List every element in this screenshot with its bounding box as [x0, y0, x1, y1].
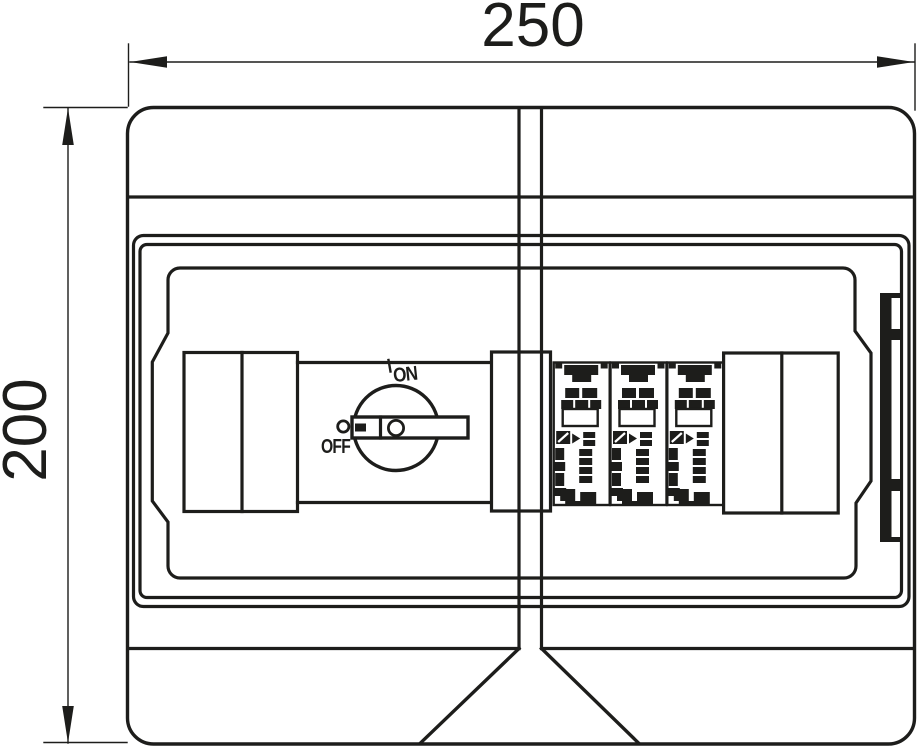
- arrowhead-down: [62, 706, 74, 743]
- enclosure-technical-drawing: ON OFF 250: [0, 0, 921, 750]
- spd-module-3: [667, 363, 724, 506]
- switch-handle-screw: [388, 420, 403, 435]
- blank-module-right: [724, 353, 839, 513]
- din-rail-slot: [892, 340, 901, 479]
- switch-on-label: ON: [392, 363, 419, 387]
- top-dimension: 250: [129, 0, 916, 110]
- spd-module-2: [610, 363, 667, 506]
- arrowhead-left: [130, 56, 167, 68]
- arrowhead-up: [62, 108, 74, 145]
- spd-modules: [553, 363, 723, 506]
- din-rail-slot: [892, 298, 901, 329]
- device-row: ON OFF: [184, 352, 838, 513]
- switch-handle: [352, 417, 468, 438]
- spd-module-1: [553, 363, 610, 506]
- blank-module-left: [184, 353, 298, 512]
- din-rail-slot: [892, 491, 901, 537]
- drawing-canvas: ON OFF 250: [0, 0, 921, 750]
- width-dimension-value: 250: [481, 0, 584, 60]
- left-dimension: 200: [0, 108, 127, 744]
- switch-handle-marker: [355, 424, 366, 432]
- off-position-dot: [338, 421, 349, 432]
- din-rail: [880, 293, 902, 542]
- switch-off-label: OFF: [321, 436, 351, 458]
- arrowhead-right: [877, 56, 914, 68]
- height-dimension-value: 200: [0, 378, 60, 481]
